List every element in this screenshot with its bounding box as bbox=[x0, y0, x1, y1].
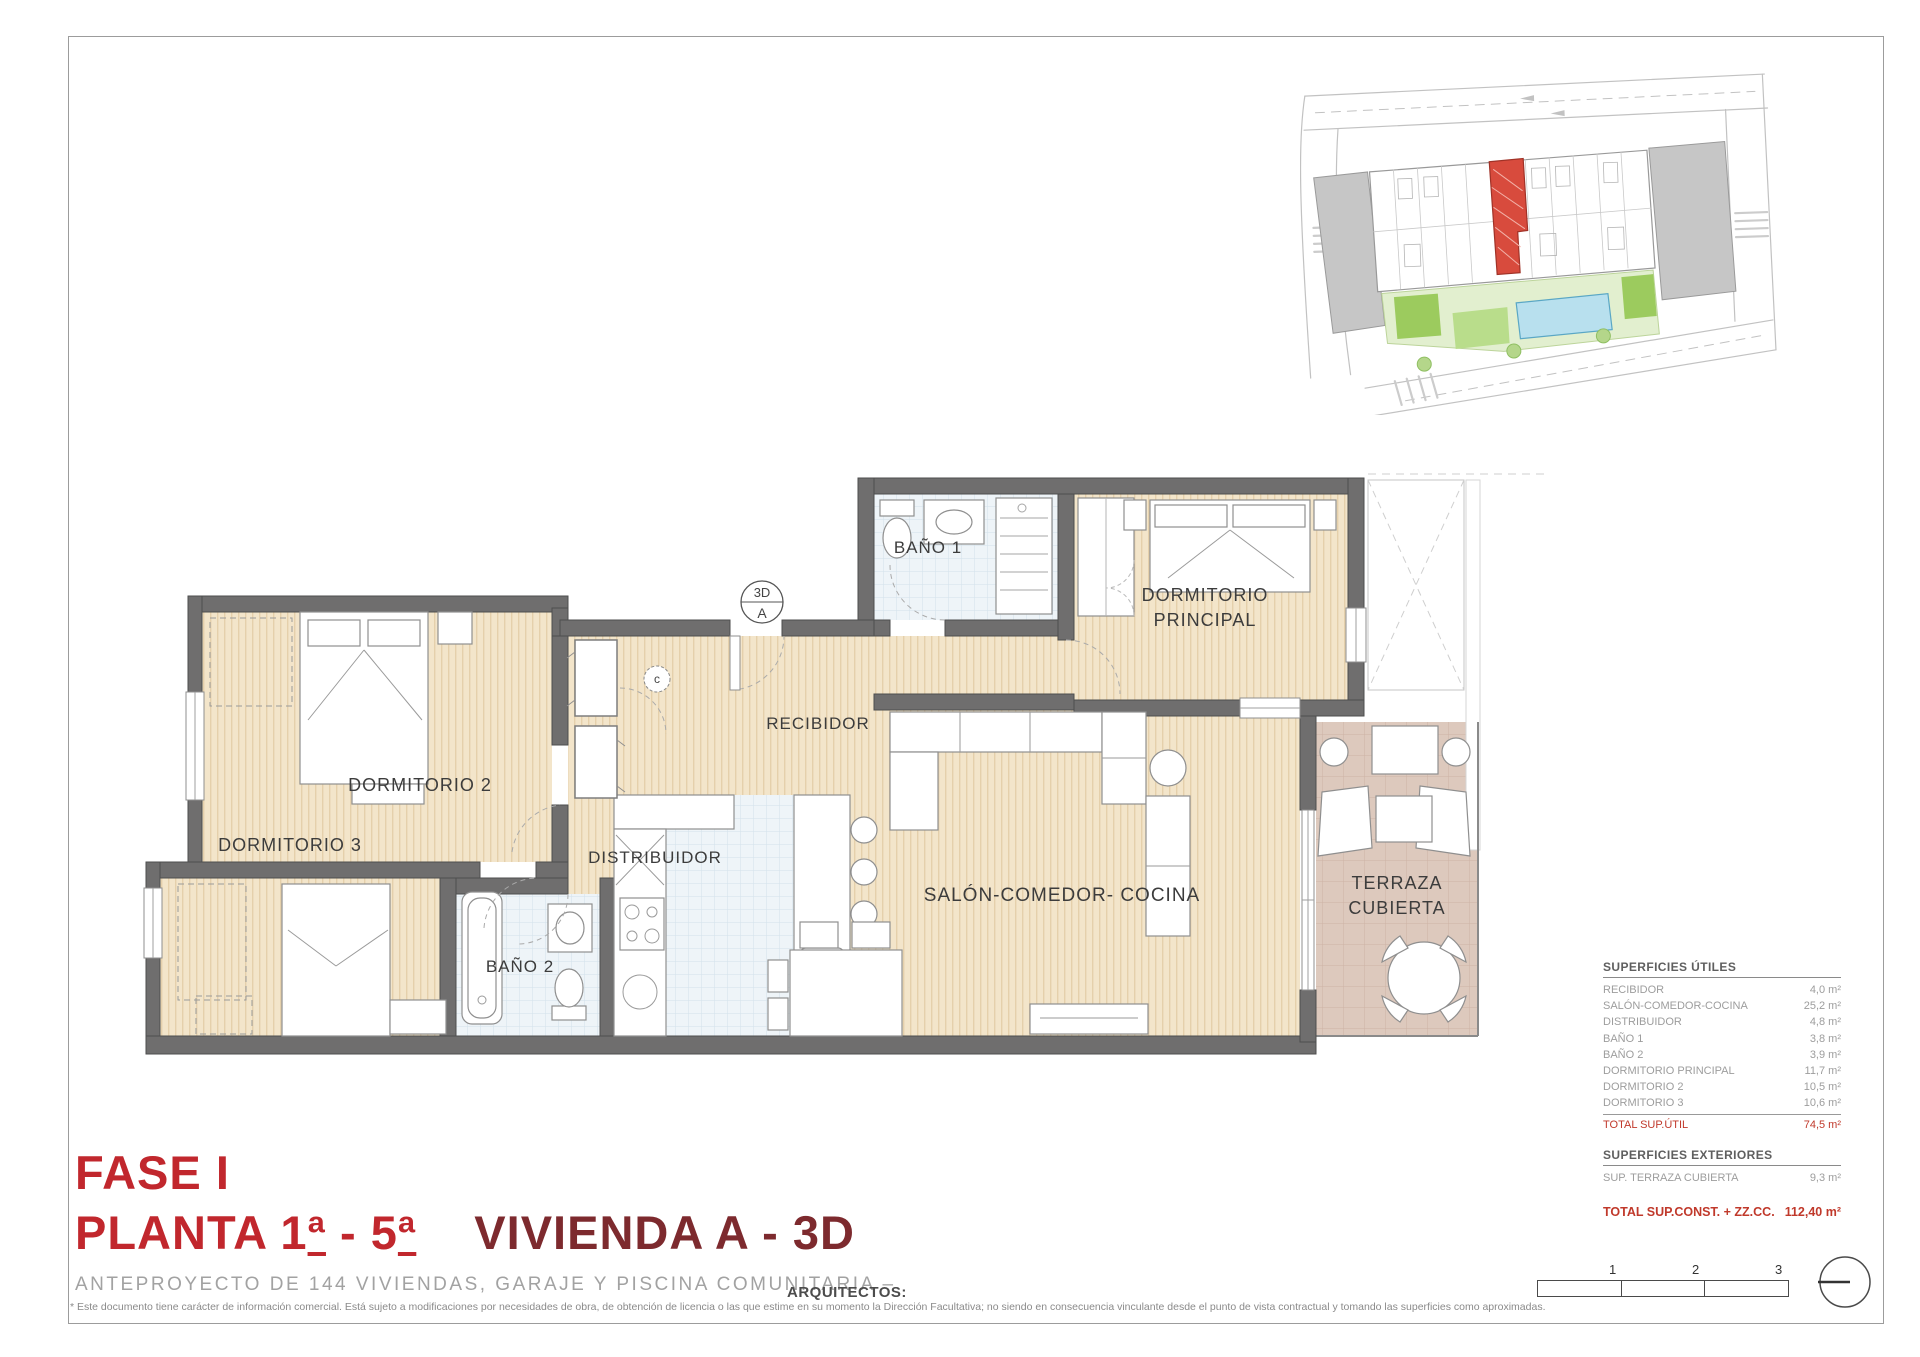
disclaimer-text: * Este documento tiene carácter de infor… bbox=[70, 1301, 1510, 1313]
surface-row: RECIBIDOR4,0 m² bbox=[1603, 982, 1841, 998]
surface-row: SALÓN-COMEDOR-COCINA25,2 m² bbox=[1603, 998, 1841, 1014]
north-indicator-icon bbox=[1812, 1252, 1874, 1314]
svg-text:c: c bbox=[654, 672, 660, 686]
title-planta: PLANTA 1ª - 5ª bbox=[75, 1206, 416, 1259]
c-marker-icon: c bbox=[644, 666, 670, 692]
room-label-dormitorio-2: DORMITORIO 2 bbox=[348, 775, 492, 795]
total-util-row: TOTAL SUP.ÚTIL74,5 m² bbox=[1603, 1114, 1841, 1133]
room-label-distribuidor: DISTRIBUIDOR bbox=[588, 848, 722, 867]
room-label-salon-comedor-cocina: SALÓN-COMEDOR- COCINA bbox=[924, 884, 1200, 906]
surface-row: SUP. TERRAZA CUBIERTA9,3 m² bbox=[1603, 1170, 1841, 1186]
title-fase: FASE I bbox=[75, 1148, 1525, 1197]
svg-text:3D: 3D bbox=[754, 585, 771, 600]
title-vivienda: VIVIENDA A - 3D bbox=[474, 1206, 855, 1259]
surface-row: DORMITORIO 210,5 m² bbox=[1603, 1079, 1841, 1095]
surface-row: DORMITORIO 310,6 m² bbox=[1603, 1095, 1841, 1111]
exteriores-header: SUPERFICIES EXTERIORES bbox=[1603, 1148, 1841, 1166]
plan-sheet: BAÑO 1DORMITORIOPRINCIPALRECIBIDORDORMIT… bbox=[0, 0, 1920, 1357]
title-planta-vivienda: PLANTA 1ª - 5ªVIVIENDA A - 3D bbox=[75, 1205, 1525, 1260]
surface-row: BAÑO 13,8 m² bbox=[1603, 1031, 1841, 1047]
room-label-dormitorio-3: DORMITORIO 3 bbox=[218, 835, 362, 855]
scale-bar: 123 bbox=[1537, 1262, 1789, 1302]
scale-number: 3 bbox=[1775, 1262, 1782, 1277]
site-plan bbox=[1300, 70, 1780, 415]
utiles-header: SUPERFICIES ÚTILES bbox=[1603, 960, 1841, 978]
scale-number: 2 bbox=[1692, 1262, 1699, 1277]
total-const-row: TOTAL SUP.CONST. + ZZ.CC.112,40 m² bbox=[1603, 1205, 1841, 1219]
surface-row: DISTRIBUIDOR4,8 m² bbox=[1603, 1014, 1841, 1030]
surface-row: BAÑO 23,9 m² bbox=[1603, 1047, 1841, 1063]
architects-label: ARQUITECTOS: bbox=[787, 1284, 907, 1301]
svg-text:A: A bbox=[757, 605, 767, 621]
section-marker-icon: 3D A bbox=[741, 581, 783, 623]
room-label-recibidor: RECIBIDOR bbox=[766, 714, 869, 733]
room-label-bano2: BAÑO 2 bbox=[486, 957, 554, 976]
scale-number: 1 bbox=[1609, 1262, 1616, 1277]
floor-plan: BAÑO 1DORMITORIOPRINCIPALRECIBIDORDORMIT… bbox=[100, 430, 1590, 1090]
title-block: FASE I PLANTA 1ª - 5ªVIVIENDA A - 3D ANT… bbox=[75, 1148, 1525, 1296]
surface-row: DORMITORIO PRINCIPAL11,7 m² bbox=[1603, 1063, 1841, 1079]
room-label-bano1: BAÑO 1 bbox=[894, 538, 962, 557]
surfaces-panel: SUPERFICIES ÚTILES RECIBIDOR4,0 m²SALÓN-… bbox=[1603, 960, 1841, 1219]
